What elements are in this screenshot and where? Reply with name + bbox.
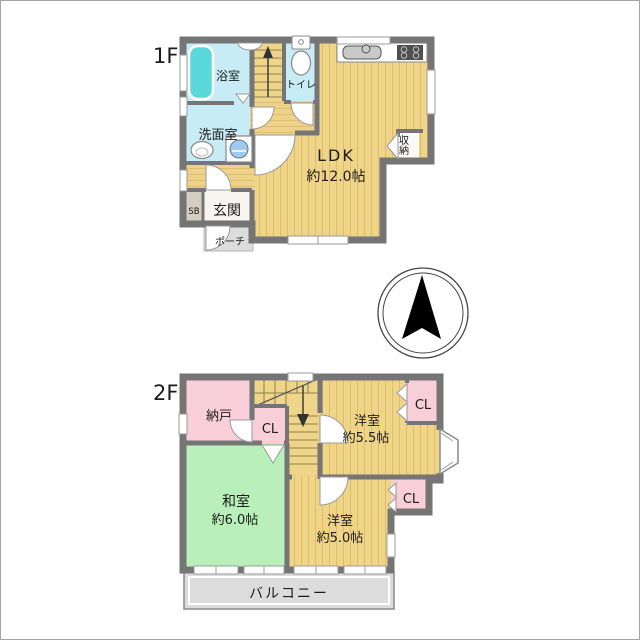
window-bath-left	[180, 55, 187, 91]
floor2-label: 2F	[153, 381, 178, 405]
window-washroom-left	[180, 97, 187, 116]
bay-window	[440, 429, 458, 474]
shoe-box-label: SB	[188, 207, 199, 217]
window-stairs-top	[288, 373, 313, 381]
bathroom-label: 浴室	[216, 69, 240, 83]
closet-mid-label: CL	[403, 492, 420, 507]
toilet-tank-icon	[292, 36, 310, 49]
ldk-label: LDK	[317, 146, 355, 165]
floor-1f: 1F 浴室 トイレ 洗面室 LDK 約12.0帖 収納 SB 玄関 ポーチ	[153, 36, 435, 251]
storage-label: 収納	[397, 135, 409, 156]
window-kitchen-right	[427, 70, 435, 114]
window-kitchen-top	[337, 37, 390, 44]
ldk-size-label: 約12.0帖	[306, 169, 365, 185]
west-room1-size-label: 約5.5帖	[343, 431, 390, 446]
balcony-label: バルコニー	[249, 586, 329, 602]
window-west2-right	[387, 534, 395, 557]
west-room2-size-label: 約5.0帖	[317, 531, 364, 546]
porch-label: ポーチ	[215, 236, 245, 248]
entrance-label: 玄関	[213, 203, 241, 219]
stove-icon	[397, 45, 423, 60]
kitchen-faucet-icon	[362, 45, 370, 53]
storeroom-label: 納戸	[206, 409, 232, 424]
japanese-room-label: 和室	[222, 494, 250, 510]
west-room1-label: 洋室	[354, 414, 380, 429]
floor-plan-drawing: 1F 浴室 トイレ 洗面室 LDK 約12.0帖 収納 SB 玄関 ポーチ	[0, 0, 640, 640]
floor1-label: 1F	[153, 44, 178, 68]
floor-2f: 2F 納戸 CL 洋室 約5.5帖 CL 和室 約6.0帖 洋室 約5.0帖 C…	[153, 373, 458, 609]
closet-hall-label: CL	[262, 422, 279, 437]
japanese-room-size-label: 約6.0帖	[212, 513, 259, 528]
floor-plan-page: 1F 浴室 トイレ 洗面室 LDK 約12.0帖 収納 SB 玄関 ポーチ	[0, 0, 640, 640]
toilet-bowl-icon	[292, 51, 311, 75]
window-hall-left	[180, 170, 187, 191]
west-room2-label: 洋室	[327, 514, 353, 529]
closet-topright-label: CL	[415, 398, 432, 413]
bathtub-icon	[189, 46, 213, 99]
washroom-label: 洗面室	[198, 128, 237, 143]
toilet-label: トイレ	[286, 80, 316, 91]
compass-north-icon	[378, 268, 468, 358]
window-storeroom-left	[179, 414, 187, 434]
